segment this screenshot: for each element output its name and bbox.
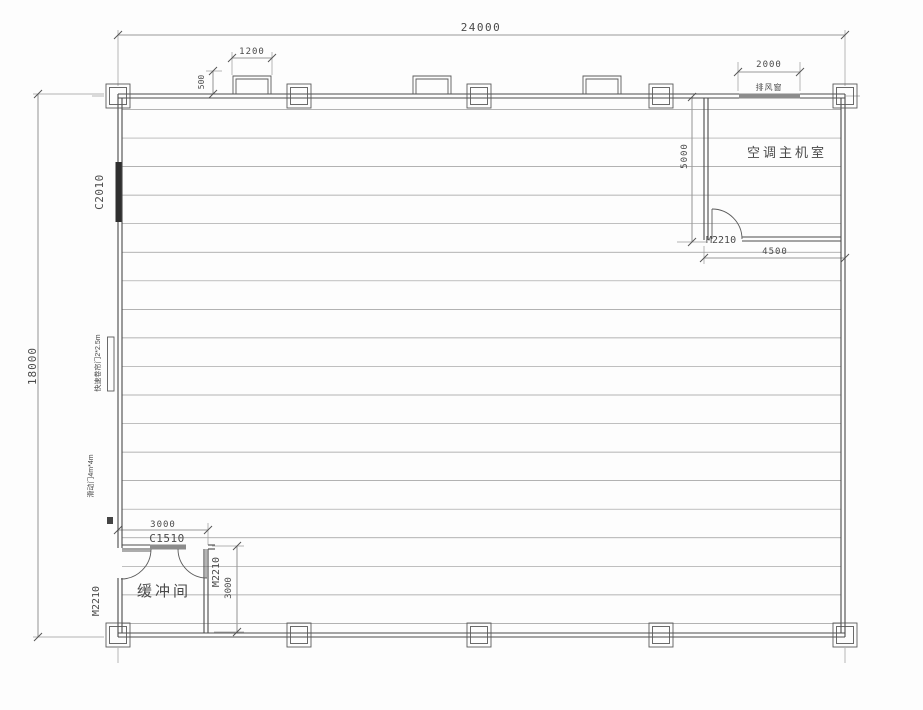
dim-roof-vent-width: 1200 [239, 47, 265, 57]
door-ac-label: M2210 [706, 235, 736, 246]
exhaust-window-label: 排风窗 [756, 82, 783, 92]
door-left-label: M2210 [91, 586, 102, 616]
floor-plan-drawing: 24000 18000 1200 500 2000 排风窗 5000 4500 … [0, 0, 923, 710]
roof-vent [233, 76, 271, 94]
column [287, 84, 311, 108]
floor-plan-canvas: 24000 18000 1200 500 2000 排风窗 5000 4500 … [0, 0, 923, 710]
dim-roof-vent-height: 500 [197, 75, 206, 90]
window-C2010-label: C2010 [93, 174, 106, 210]
dim-overall-width: 24000 [461, 21, 502, 34]
rollup-door-label: 快速卷帘门2*2.5m [93, 334, 102, 391]
door-buffer-M2210-symbol [178, 549, 207, 578]
walls [118, 94, 845, 637]
sliding-door-symbol [107, 517, 113, 524]
column [287, 623, 311, 647]
buffer-room-label: 缓冲间 [137, 583, 191, 600]
exhaust-window-symbol [739, 94, 800, 99]
window-symbols [116, 94, 801, 550]
column [467, 84, 491, 108]
door-symbols [107, 209, 742, 579]
dim-overall-depth: 18000 [26, 347, 39, 385]
labels: 24000 18000 1200 500 2000 排风窗 5000 4500 … [26, 21, 827, 616]
dim-exhaust-window-width: 2000 [756, 60, 782, 70]
roof-vent [583, 76, 621, 94]
column [649, 84, 673, 108]
dim-ac-room-depth: 5000 [680, 143, 690, 169]
rollup-door-symbol [108, 337, 115, 391]
roof-vents [233, 76, 621, 94]
ac-room-label: 空调主机室 [747, 145, 827, 160]
dim-buffer-width: 3000 [150, 520, 176, 530]
extension-lines [33, 30, 860, 663]
sliding-door-label: 滑动门4m*4m [86, 454, 95, 497]
window-C2010-symbol [116, 162, 122, 222]
roof-vent [413, 76, 451, 94]
door-buffer-label: M2210 [211, 557, 222, 587]
dim-buffer-depth: 3000 [224, 577, 234, 599]
window-C1510-label: C1510 [149, 532, 185, 545]
column [467, 623, 491, 647]
dim-ac-room-width: 4500 [762, 247, 788, 257]
window-C1510-symbol [150, 545, 186, 550]
door-left-M2210-symbol [121, 549, 151, 579]
column [649, 623, 673, 647]
